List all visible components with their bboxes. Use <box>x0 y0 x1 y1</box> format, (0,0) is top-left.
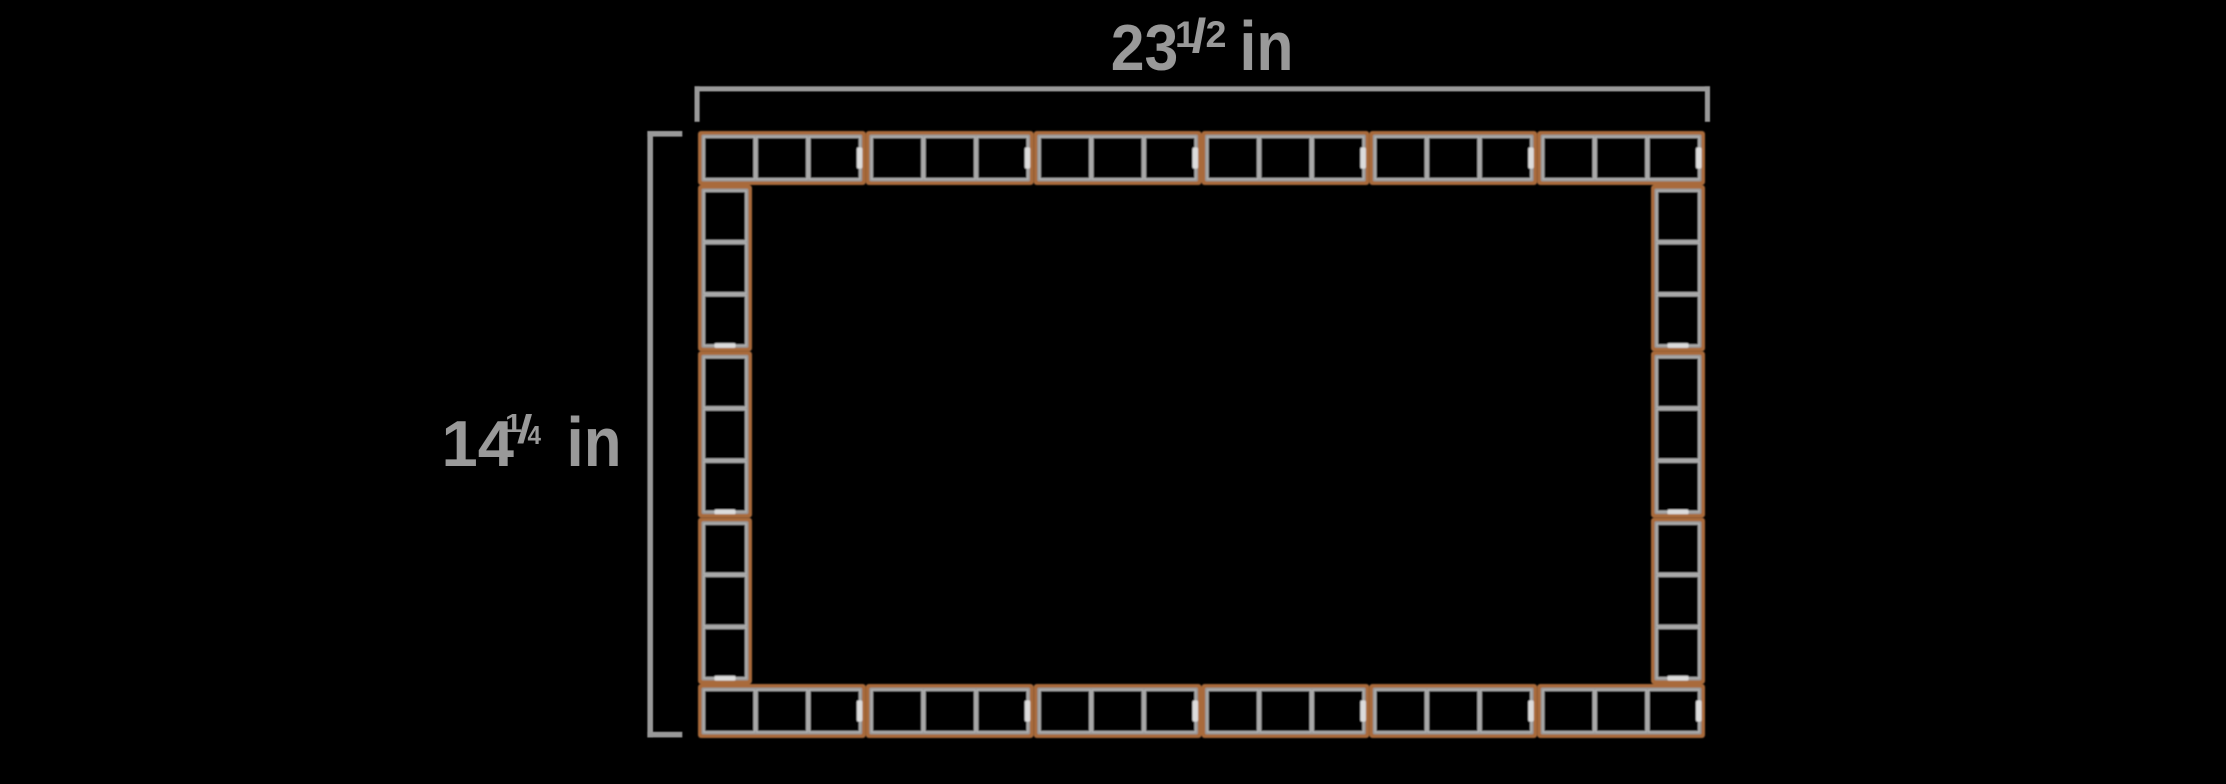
svg-text:in: in <box>1240 7 1294 85</box>
svg-text:14: 14 <box>442 407 515 480</box>
svg-text:23: 23 <box>1111 11 1179 84</box>
svg-text:1: 1 <box>1175 14 1196 55</box>
svg-text:4: 4 <box>528 420 542 450</box>
svg-text:in: in <box>567 403 622 481</box>
svg-text:2: 2 <box>1206 14 1227 55</box>
svg-text:1: 1 <box>505 408 522 438</box>
